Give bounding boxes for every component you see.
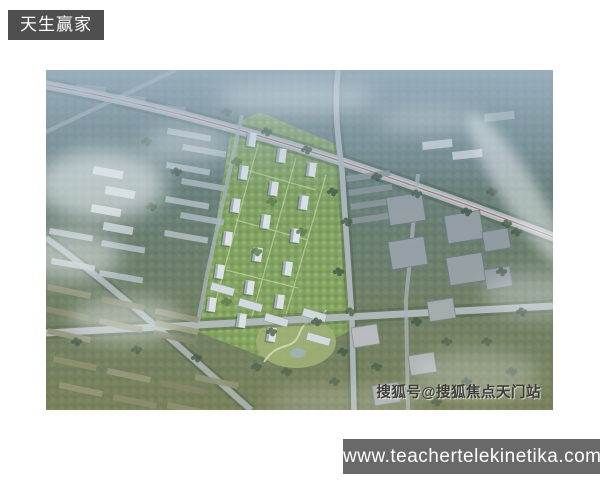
site-url-banner: www.teachertelekinetika.com [343, 439, 600, 474]
aerial-photo: 搜狐号@搜狐焦点天门站 [46, 70, 553, 410]
brand-badge: 天生赢家 [8, 10, 104, 40]
aerial-render-illustration [46, 70, 553, 410]
article-page: 天生赢家 [0, 0, 600, 480]
photo-watermark: 搜狐号@搜狐焦点天门站 [376, 381, 541, 402]
